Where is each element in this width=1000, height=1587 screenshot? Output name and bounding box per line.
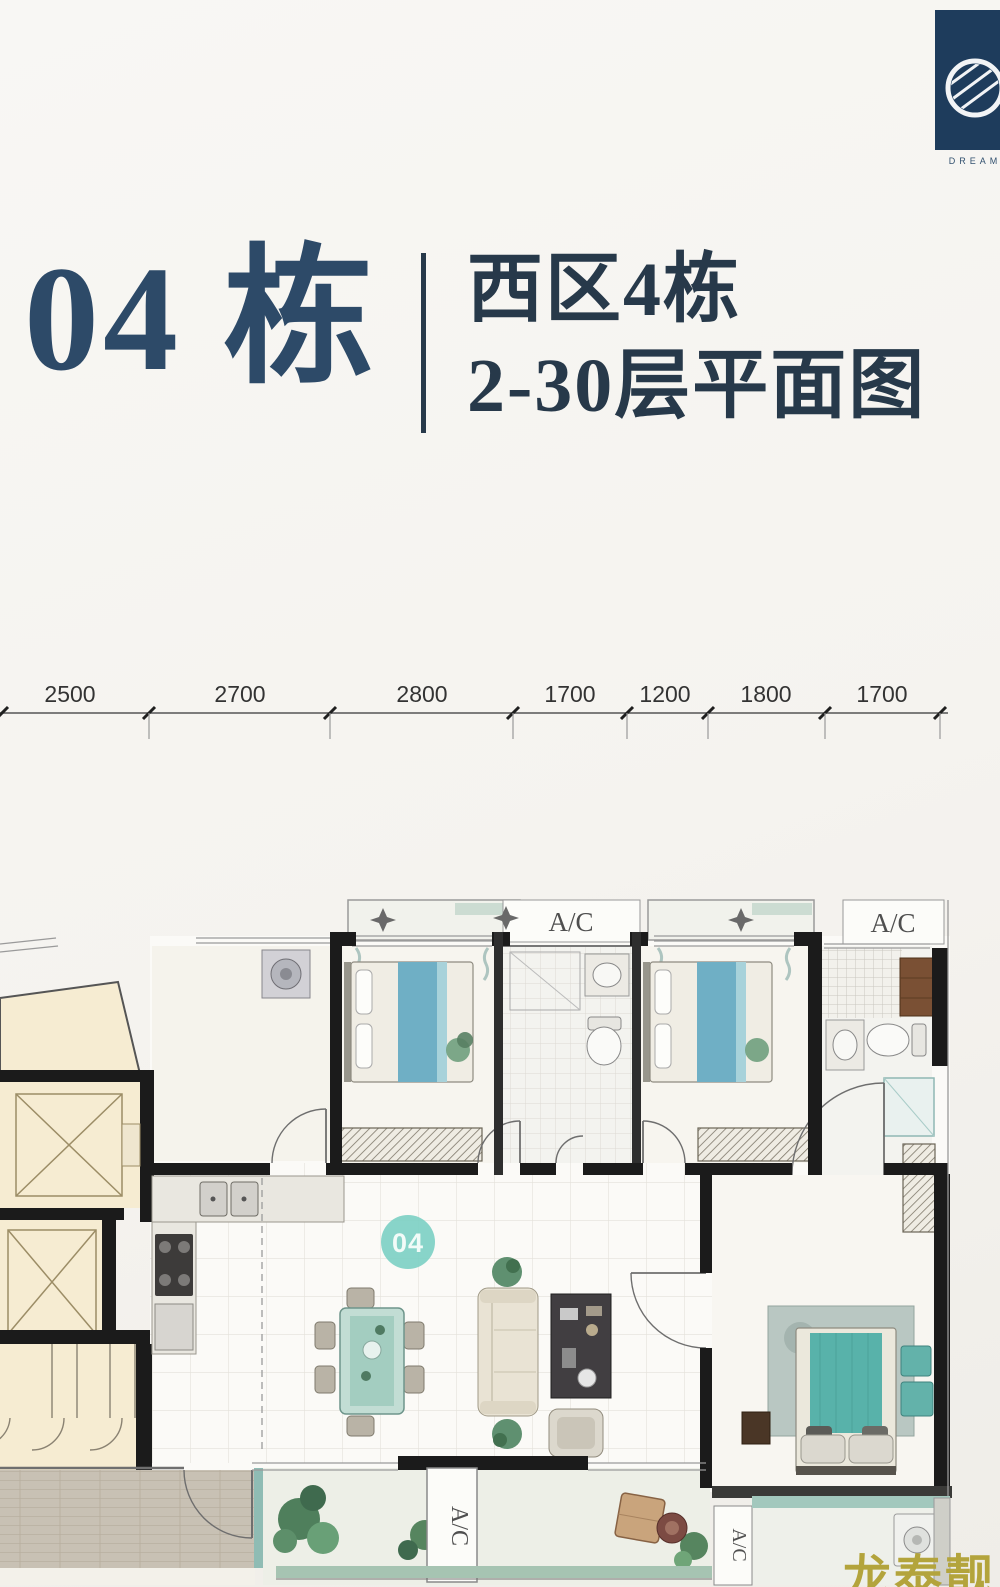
bed-icon [344,962,473,1082]
unit-badge: 04 [381,1215,435,1269]
armchair [549,1409,603,1457]
toilet-icon [587,1017,621,1065]
ac-label-top-right: A/C [870,908,915,938]
railing [276,1566,712,1578]
watermark: 龙泰靓房 [843,1538,1000,1587]
ac-label-balcony-right: A/C [728,1528,750,1561]
fridge-icon [155,1304,193,1350]
public-corridor [0,1470,255,1585]
dimension-label: 1700 [544,681,595,707]
zone-subtitle-line2: 2-30层平面图 [467,339,926,435]
page-background: DREAM 04 栋 西区4栋 2-30层平面图 2500 2700 2800 … [0,0,1000,1587]
dimension-label: 2500 [44,681,95,707]
zone-subtitle: 西区4栋 2-30层平面图 [467,243,926,435]
dimension-label: 2700 [214,681,265,707]
elevator-vestibule [0,1344,150,1470]
logo-wordmark: DREAM [949,156,1000,166]
dimension-ruler: 2500 2700 2800 1700 1200 1800 1700 [0,668,1000,744]
dimension-label: 1800 [740,681,791,707]
title-divider [421,253,426,433]
floor-plan: A/C A/C [0,878,1000,1587]
brand-logo: DREAM [935,6,1000,171]
toilet-icon [867,1024,926,1056]
outdoor-table [615,1493,666,1544]
wardrobe [903,1144,935,1232]
building-title: 04 栋 [24,244,378,394]
dimension-label: 1200 [639,681,690,707]
cabinet [900,958,933,1016]
nightstand [901,1346,931,1376]
wardrobe [336,1128,482,1161]
ac-label-top-left: A/C [548,907,593,937]
railing [752,1496,950,1508]
master-bed-icon [796,1328,896,1475]
dimension-label: 2800 [396,681,447,707]
unit-badge-label: 04 [392,1228,424,1258]
zone-subtitle-line1: 西区4栋 [467,243,926,339]
nightstand [901,1382,933,1416]
plant-icon [745,1038,769,1062]
sofa [478,1288,538,1416]
tv-console [551,1294,611,1398]
stair-room [0,982,140,1074]
bed-icon [643,962,772,1082]
ac-label-balcony-left: A/C [446,1506,472,1546]
logo-tile [935,10,1000,150]
dimension-label: 1700 [856,681,907,707]
bench [742,1412,770,1444]
